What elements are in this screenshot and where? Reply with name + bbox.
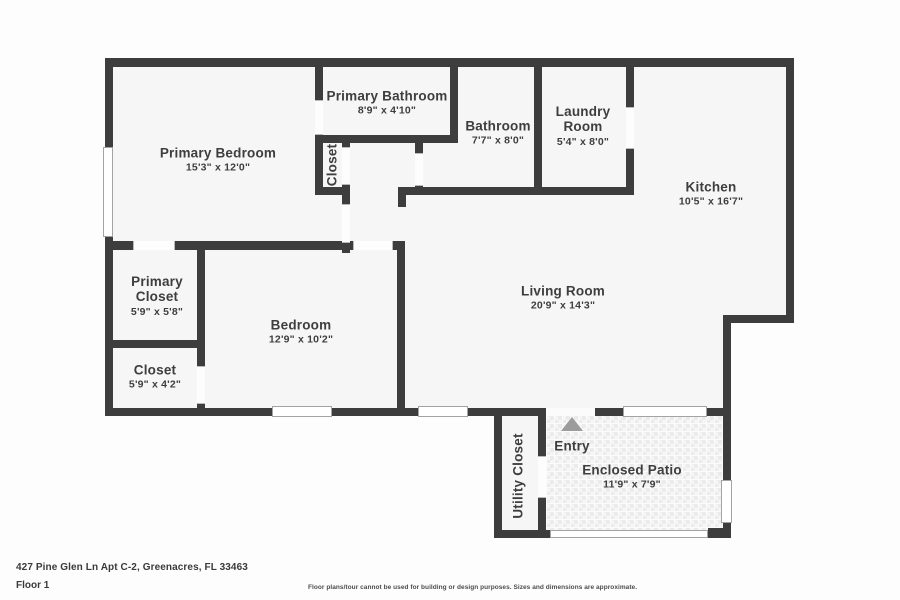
floorplan-page: Primary Bedroom 15'3" x 12'0" Primary Ba… xyxy=(0,0,900,600)
room-name: Enclosed Patio xyxy=(582,463,682,478)
room-name: Kitchen xyxy=(679,180,743,195)
room-label-primary-bedroom: Primary Bedroom 15'3" x 12'0" xyxy=(160,146,276,175)
wall xyxy=(494,530,550,538)
room-label-living-room: Living Room 20'9" x 14'3" xyxy=(521,284,605,313)
room-name: Utility Closet xyxy=(510,433,525,518)
room-label-enclosed-patio: Enclosed Patio 11'9" x 7'9" xyxy=(582,463,682,492)
address-text: 427 Pine Glen Ln Apt C-2, Greenacres, FL… xyxy=(16,562,248,573)
room-dims: 8'9" x 4'10" xyxy=(327,106,448,118)
room-dims: 5'4" x 8'0" xyxy=(550,136,616,148)
wall xyxy=(786,58,794,323)
room-name: Primary Bathroom xyxy=(327,89,448,104)
wall xyxy=(450,58,458,143)
door-opening xyxy=(415,153,423,186)
room-name: Closet xyxy=(324,144,339,186)
window xyxy=(623,406,707,417)
room-name: Entry xyxy=(554,438,590,453)
room-label-laundry-room: Laundry Room 5'4" x 8'0" xyxy=(550,104,616,148)
room-dims: 10'5" x 16'7" xyxy=(679,197,743,209)
window xyxy=(103,147,113,237)
room-label-bedroom: Bedroom 12'9" x 10'2" xyxy=(269,318,333,347)
window xyxy=(272,406,332,417)
room-name: Closet xyxy=(129,363,181,378)
room-label-bathroom: Bathroom 7'7" x 8'0" xyxy=(465,119,530,148)
window xyxy=(418,406,468,417)
room-label-utility-closet: Utility Closet xyxy=(510,433,525,518)
window xyxy=(550,530,708,538)
door-opening xyxy=(342,204,350,243)
door-opening xyxy=(353,241,393,250)
room-label-closet: Closet 5'9" x 4'2" xyxy=(129,363,181,392)
room-dims: 5'9" x 4'2" xyxy=(129,380,181,392)
room-dims: 5'9" x 5'8" xyxy=(126,306,188,318)
wall xyxy=(494,416,502,538)
room-name: Bathroom xyxy=(465,119,530,134)
room-name: Living Room xyxy=(521,284,605,299)
room-label-primary-bathroom: Primary Bathroom 8'9" x 4'10" xyxy=(327,89,448,118)
room-name: Primary Closet xyxy=(126,274,188,305)
door-opening xyxy=(197,366,205,404)
wall xyxy=(534,58,542,195)
wall xyxy=(105,58,113,416)
room-label-hall-closet: Closet xyxy=(324,144,339,186)
wall xyxy=(723,315,794,323)
disclaimer-text: Floor plans/tour cannot be used for buil… xyxy=(308,584,637,591)
wall xyxy=(105,340,205,348)
entry-arrow-icon xyxy=(561,417,583,431)
wall xyxy=(398,187,634,195)
door-opening xyxy=(538,456,546,498)
door-opening xyxy=(342,147,350,185)
room-dims: 12'9" x 10'2" xyxy=(269,335,333,347)
room-dims: 20'9" x 14'3" xyxy=(521,301,605,313)
wall xyxy=(397,250,405,416)
room-name: Laundry Room xyxy=(550,104,616,135)
room-label-primary-closet: Primary Closet 5'9" x 5'8" xyxy=(126,274,188,318)
room-label-kitchen: Kitchen 10'5" x 16'7" xyxy=(679,180,743,209)
room-dims: 7'7" x 8'0" xyxy=(465,136,530,148)
floor-label: Floor 1 xyxy=(16,580,49,591)
room-label-entry: Entry xyxy=(554,438,590,453)
door-opening xyxy=(626,107,634,149)
wall xyxy=(315,135,458,143)
room-dims: 11'9" x 7'9" xyxy=(582,480,682,492)
room-name: Bedroom xyxy=(269,318,333,333)
wall xyxy=(708,528,731,538)
door-opening xyxy=(315,100,323,135)
door-opening xyxy=(133,241,175,250)
wall xyxy=(398,195,406,207)
wall xyxy=(315,187,350,195)
entry-opening xyxy=(546,408,595,416)
room-dims: 15'3" x 12'0" xyxy=(160,163,276,175)
window xyxy=(721,480,732,523)
room-name: Primary Bedroom xyxy=(160,146,276,161)
